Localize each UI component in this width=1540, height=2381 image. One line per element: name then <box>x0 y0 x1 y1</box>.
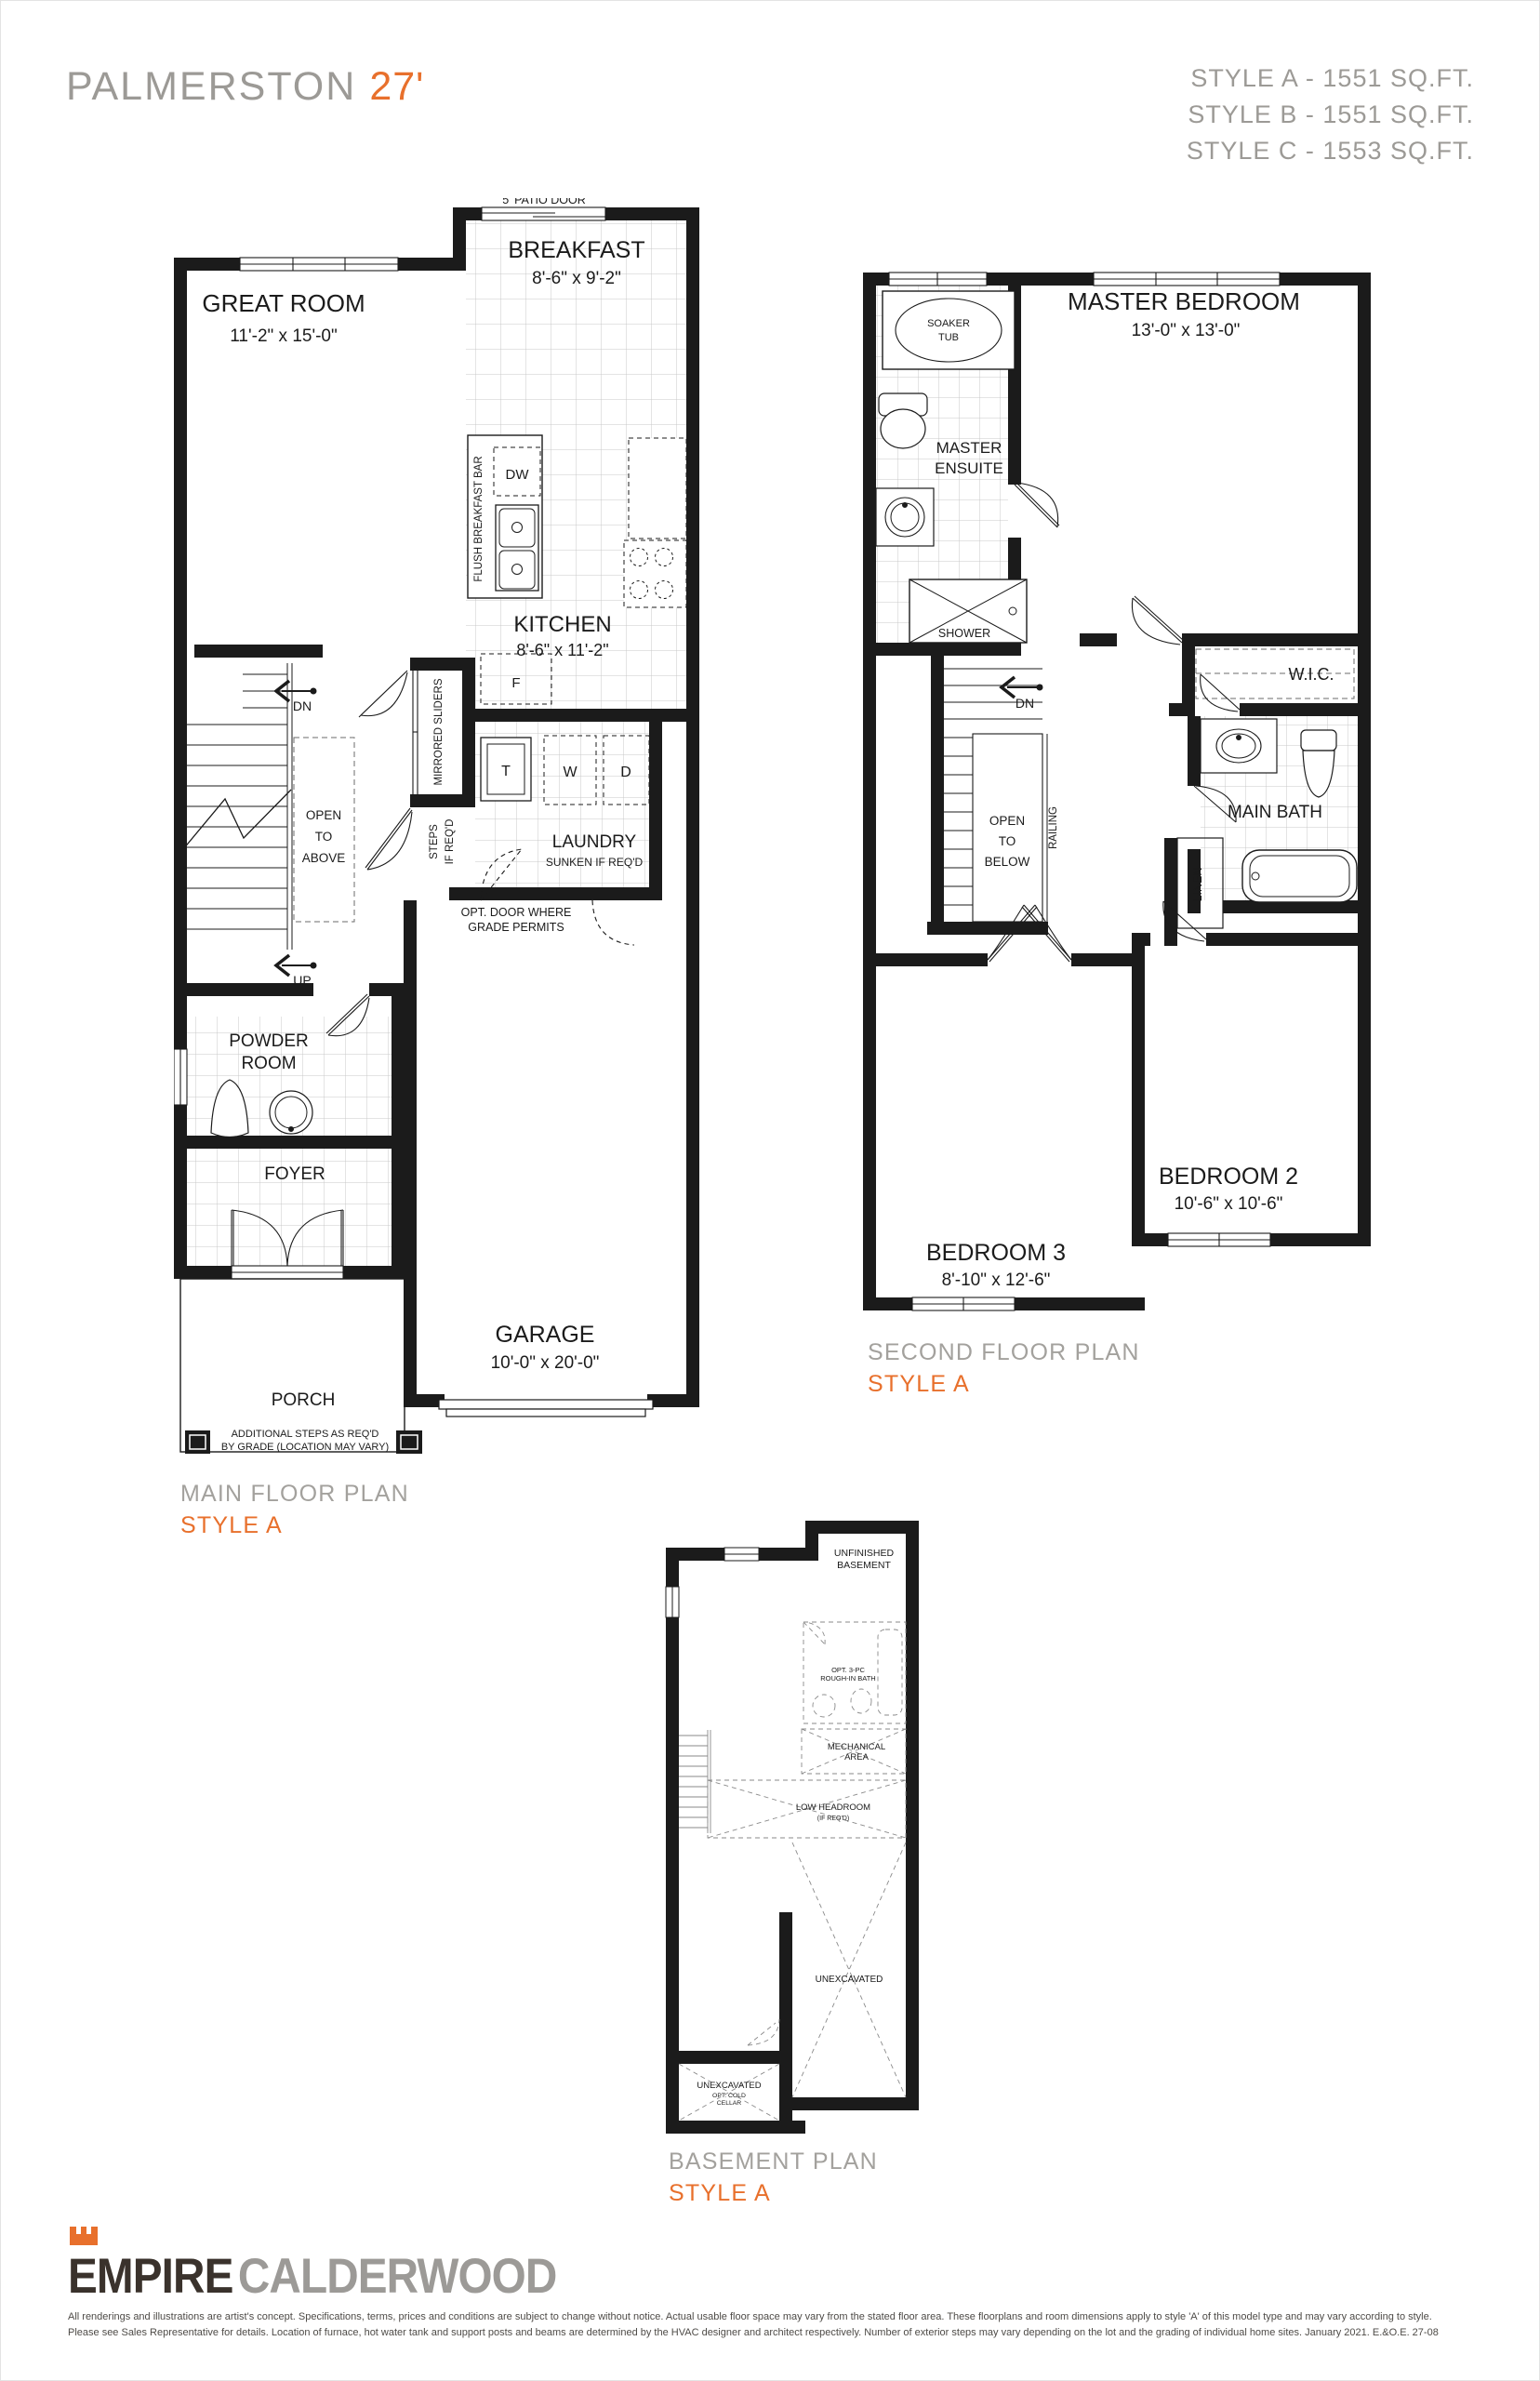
label-ensuite-1: MASTER <box>936 439 1002 457</box>
label-fridge: F <box>511 675 520 691</box>
label-great-room-dims: 11'-2" x 15'-0" <box>230 326 337 346</box>
label-steps-1: STEPS <box>429 824 440 859</box>
label-garage-dims: 10'-0" x 20'-0" <box>491 1353 600 1373</box>
label-foyer: FOYER <box>264 1164 325 1184</box>
label-main-bath: MAIN BATH <box>1228 803 1322 822</box>
label-open-below-3: BELOW <box>985 855 1030 869</box>
label-low-headroom: LOW HEADROOM <box>796 1802 870 1813</box>
label-unfinished-1: UNFINISHED <box>834 1548 895 1559</box>
label-powder-1: POWDER <box>229 1031 309 1051</box>
style-sqft-list: STYLE A - 1551 SQ.FT. STYLE B - 1551 SQ.… <box>1187 60 1474 169</box>
logo-calderwood: CALDERWOOD <box>238 2249 557 2304</box>
label-mechanical-2: AREA <box>844 1752 870 1762</box>
label-roughin-1: OPT. 3-PC <box>831 1666 865 1674</box>
label-porch: PORCH <box>272 1390 336 1410</box>
label-powder-2: ROOM <box>241 1054 296 1073</box>
label-dw: DW <box>506 467 530 483</box>
label-steps-note-2: BY GRADE (LOCATION MAY VARY) <box>221 1442 389 1453</box>
label-tub: T <box>501 764 511 779</box>
label-unfinished-2: BASEMENT <box>837 1560 891 1571</box>
staircase <box>183 663 354 950</box>
label-mechanical-1: MECHANICAL <box>828 1742 885 1752</box>
style-c-sqft: STYLE C - 1553 SQ.FT. <box>1187 133 1474 169</box>
basement-plan-drawing: UNFINISHED BASEMENT OPT. 3-PC ROUGH-IN B… <box>652 1512 926 2163</box>
floorplan-page: PALMERSTON27' STYLE A - 1551 SQ.FT. STYL… <box>0 0 1540 2381</box>
label-dn: DN <box>1016 696 1034 711</box>
label-steps-note-1: ADDITIONAL STEPS AS REQ'D <box>232 1429 379 1440</box>
label-bedroom3: BEDROOM 3 <box>926 1240 1066 1266</box>
label-mirrored-sliders: MIRRORED SLIDERS <box>433 678 445 785</box>
label-kitchen-dims: 8'-6" x 11'-2" <box>516 641 608 659</box>
disclaimer-line-1: All renderings and illustrations are art… <box>68 2309 1480 2325</box>
page-title: PALMERSTON27' <box>66 64 424 110</box>
label-low-headroom-sub: (IF REQ'D) <box>817 1816 849 1822</box>
main-floor-plan-drawing: 5' PATIO DOOR BREAKFAST 8'-6" x 9'-2" GR… <box>174 198 713 1463</box>
label-up: UP <box>293 973 311 988</box>
staircase <box>679 1730 710 1833</box>
castle-icon <box>70 2226 98 2245</box>
label-cold-3: CELLAR <box>717 2100 742 2107</box>
label-open-above-3: ABOVE <box>302 851 346 865</box>
label-cold-1: UNEXCAVATED <box>697 2081 761 2091</box>
label-bedroom2-dims: 10'-6" x 10'-6" <box>1175 1194 1283 1214</box>
logo-empire: EMPIRE <box>68 2249 232 2304</box>
label-unexcavated: UNEXCAVATED <box>816 1975 883 1985</box>
label-kitchen: KITCHEN <box>513 612 611 637</box>
label-great-room: GREAT ROOM <box>202 289 365 317</box>
label-linen: LINEN <box>1191 868 1204 902</box>
disclaimer: All renderings and illustrations are art… <box>68 2309 1480 2341</box>
disclaimer-line-2: Please see Sales Representative for deta… <box>68 2325 1480 2341</box>
label-ensuite-2: ENSUITE <box>935 459 1003 477</box>
label-breakfast: BREAKFAST <box>508 237 644 263</box>
label-open-below-1: OPEN <box>989 814 1025 828</box>
builder-logo: EMPIRECALDERWOOD <box>68 2226 611 2305</box>
model-name: PALMERSTON <box>66 64 356 109</box>
label-laundry-sub: SUNKEN IF REQ'D <box>546 856 644 869</box>
label-bedroom3-dims: 8'-10" x 12'-6" <box>942 1270 1051 1290</box>
label-washer: W <box>563 765 577 780</box>
style-b-sqft: STYLE B - 1551 SQ.FT. <box>1187 97 1474 133</box>
label-dn: DN <box>293 698 312 713</box>
label-roughin-2: ROUGH-IN BATH <box>820 1674 875 1683</box>
model-width: 27' <box>369 64 424 109</box>
basement-caption-title: BASEMENT PLAN <box>669 2148 878 2175</box>
stair-arrows <box>1002 677 1042 698</box>
label-master-bedroom-dims: 13'-0" x 13'-0" <box>1132 321 1241 340</box>
label-cold-2: OPT. COLD <box>712 2093 746 2099</box>
label-patio-door: 5' PATIO DOOR <box>502 198 585 206</box>
label-soaker-2: TUB <box>938 332 959 343</box>
label-wic: W.I.C. <box>1289 665 1334 684</box>
second-floor-caption-style: STYLE A <box>868 1370 1140 1398</box>
mirrored-sliders-closet <box>413 671 418 794</box>
main-floor-caption-title: MAIN FLOOR PLAN <box>180 1480 409 1508</box>
main-floor-caption: MAIN FLOOR PLAN STYLE A <box>180 1480 409 1539</box>
style-a-sqft: STYLE A - 1551 SQ.FT. <box>1187 60 1474 97</box>
basement-caption-style: STYLE A <box>669 2179 878 2207</box>
label-flush-breakfast-bar: FLUSH BREAKFAST BAR <box>473 456 485 581</box>
label-railing: RAILING <box>1048 806 1059 849</box>
label-laundry: LAUNDRY <box>552 832 637 852</box>
label-shower: SHOWER <box>938 627 990 640</box>
label-opt-door-1: OPT. DOOR WHERE <box>461 906 572 919</box>
label-bedroom2: BEDROOM 2 <box>1159 1164 1298 1190</box>
label-opt-door-2: GRADE PERMITS <box>468 921 564 934</box>
label-garage: GARAGE <box>496 1322 595 1348</box>
label-soaker-1: SOAKER <box>927 318 970 329</box>
label-breakfast-dims: 8'-6" x 9'-2" <box>532 269 621 288</box>
basement-caption: BASEMENT PLAN STYLE A <box>669 2148 878 2207</box>
label-dryer: D <box>620 765 631 780</box>
main-floor-caption-style: STYLE A <box>180 1511 409 1539</box>
label-steps-2: IF REQ'D <box>445 819 456 865</box>
second-floor-plan-drawing: SOAKER TUB MASTER BEDROOM 13'-0" x 13'-0… <box>856 254 1377 1319</box>
label-master-bedroom: MASTER BEDROOM <box>1068 287 1300 315</box>
second-floor-caption-title: SECOND FLOOR PLAN <box>868 1338 1140 1366</box>
second-floor-caption: SECOND FLOOR PLAN STYLE A <box>868 1338 1140 1398</box>
label-open-above-1: OPEN <box>306 808 341 822</box>
label-open-below-2: TO <box>999 834 1016 848</box>
label-open-above-2: TO <box>315 830 333 844</box>
